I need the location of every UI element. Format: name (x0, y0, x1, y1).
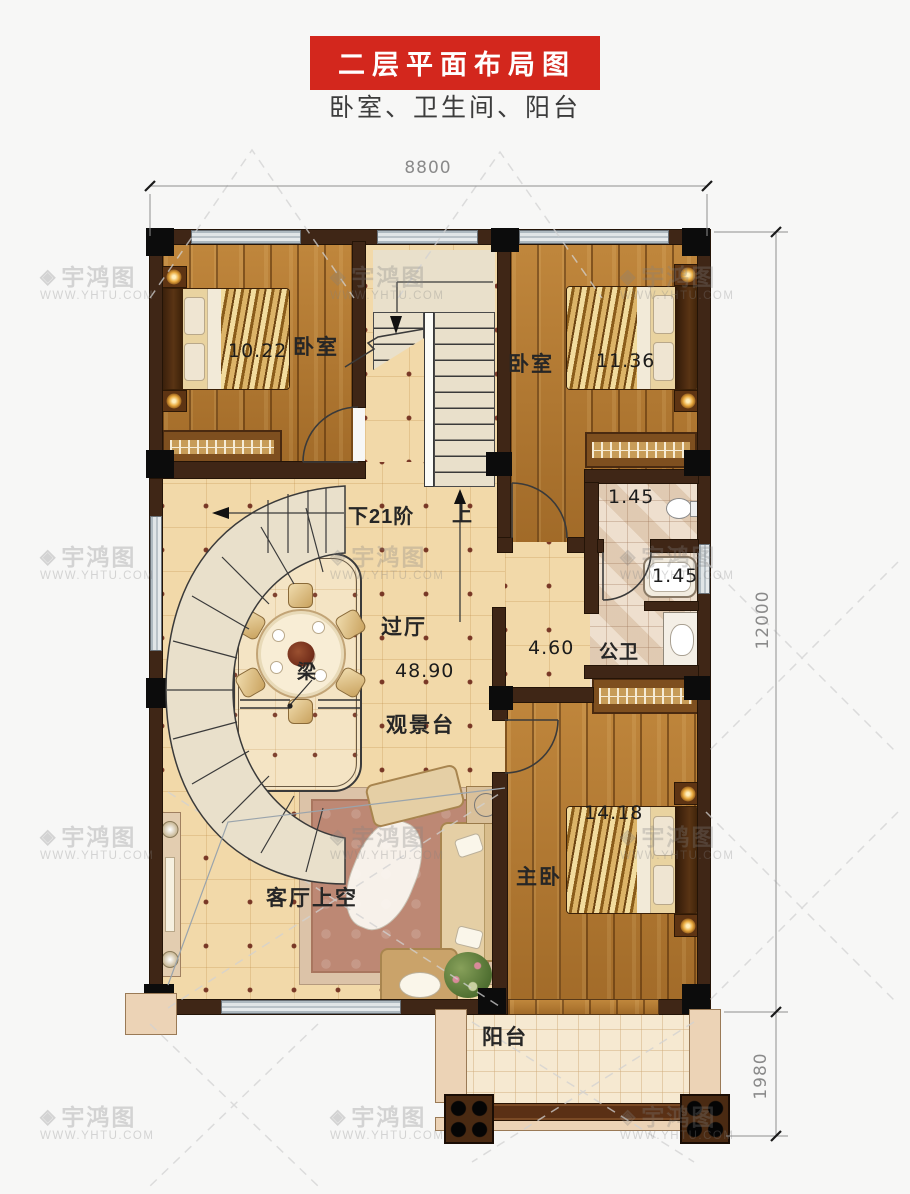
wall-bath-bottom (585, 666, 698, 678)
bathroom-label: 公卫 (599, 637, 639, 664)
wall-bath-top (585, 470, 698, 483)
living-void-label: 客厅上空 (266, 882, 358, 912)
sink-counter (663, 612, 700, 668)
nightstand (160, 266, 187, 288)
nightstand (674, 782, 701, 805)
window-stairs (378, 231, 477, 243)
bath-mid-area: 1.45 (652, 565, 698, 587)
balcony-railing (466, 1104, 692, 1120)
wall-bath-left (585, 483, 598, 613)
column (489, 686, 513, 710)
nightstand (674, 914, 701, 937)
balcony-doorway (508, 1000, 658, 1014)
bed-blanket (567, 287, 637, 389)
wall-bath-div1b (651, 540, 698, 552)
console-knob (161, 821, 178, 838)
watermark-brand: 宇鸿图 (61, 545, 136, 569)
wall-master-left-b (493, 773, 507, 1014)
window-living (222, 1001, 400, 1013)
sofa-pillow (454, 925, 484, 950)
watermark-brand: 宇鸿图 (61, 265, 136, 289)
window-bedroom-right (520, 231, 668, 243)
stair-landing (373, 250, 495, 314)
dim-width-top: 8800 (328, 158, 528, 178)
watermark-brand: 宇鸿图 (61, 825, 136, 849)
floor-plan-page: 二层平面布局图 卧室、卫生间、阳台 (0, 0, 910, 1194)
wall-nook-a (498, 538, 512, 552)
wall-bath-div1a (598, 540, 603, 552)
window-left (151, 517, 161, 650)
watermark: ◈宇鸿图WWW.YHTU.COM (40, 1105, 200, 1142)
column (491, 228, 519, 252)
hall-area: 48.90 (395, 660, 454, 682)
beam-label: 梁 (297, 657, 317, 684)
dining-table (256, 609, 346, 699)
wall-bath-div2 (645, 602, 698, 610)
window-bedroom-left (192, 231, 300, 243)
balcony-label: 阳台 (482, 1021, 528, 1051)
table-cup (312, 621, 325, 634)
wall-bedroom-right-left (498, 242, 510, 552)
nightstand (674, 390, 701, 412)
bed-headboard (675, 807, 699, 913)
balcony-corner-post (444, 1094, 494, 1144)
nightstand (674, 264, 701, 286)
nightstand (160, 390, 187, 412)
stairs-up-label: 上 (452, 498, 473, 527)
table-cup (270, 661, 283, 674)
dining-stool (288, 699, 313, 724)
bed-left (158, 288, 290, 390)
watermark-logo-icon: ◈ (40, 1107, 57, 1128)
bed-pillow (653, 816, 674, 856)
column (146, 678, 174, 708)
bed-pillow (653, 342, 674, 381)
column (486, 452, 512, 476)
column (478, 988, 506, 1014)
bedroom-left-area: 10.22 (228, 340, 287, 362)
master-bedroom-label: 主卧 (516, 861, 562, 891)
balcony-corner-post (680, 1094, 730, 1144)
hall-label: 过厅 (381, 611, 427, 641)
watermark-logo-icon: ◈ (40, 267, 57, 288)
wardrobe-right (585, 432, 697, 468)
sofa-pillow (454, 832, 485, 858)
watermark-brand: 宇鸿图 (61, 1105, 136, 1129)
bed-pillow (653, 295, 674, 334)
watermark-logo-icon: ◈ (40, 547, 57, 568)
console-knob (161, 951, 178, 968)
wardrobe-rail (592, 442, 689, 457)
wall-bedroom-left-right (353, 242, 365, 407)
bedroom-right-area: 11.36 (596, 350, 655, 372)
bed-fold (636, 287, 651, 389)
bedroom-left-label: 卧室 (293, 331, 339, 361)
viewing-deck-label: 观景台 (386, 709, 455, 739)
stairs-down-label: 下21阶 (348, 500, 414, 529)
bed-headboard (675, 287, 699, 389)
column (684, 450, 710, 476)
wardrobe-rail (170, 440, 274, 454)
bed-pillow (184, 343, 205, 381)
wall-right (698, 230, 710, 1014)
bed-right (566, 286, 700, 390)
balcony-pier-right (690, 1010, 720, 1102)
bed-fold (207, 289, 222, 389)
watermark-logo-icon: ◈ (40, 827, 57, 848)
stair-handrail (424, 312, 434, 487)
page-title: 二层平面布局图 (310, 36, 600, 90)
wardrobe-rail (599, 688, 692, 703)
dim-height-right: 12000 (753, 580, 773, 660)
toilet (666, 498, 692, 519)
column (684, 676, 710, 700)
column (682, 228, 710, 256)
bed-blanket (221, 289, 289, 389)
bed-headboard (159, 289, 183, 389)
bedroom-right-label: 卧室 (508, 348, 554, 378)
column (146, 228, 174, 256)
page-subtitle: 卧室、卫生间、阳台 (329, 88, 581, 124)
wall-corridor-left (493, 608, 505, 690)
bed-pillow (653, 865, 674, 905)
armchair-cushion (399, 972, 441, 998)
wardrobe-left (162, 430, 282, 464)
master-bedroom-area: 14.18 (584, 802, 643, 824)
corridor-area: 4.60 (528, 637, 574, 659)
corridor-floor (505, 542, 590, 690)
bath-top-area: 1.45 (608, 486, 654, 508)
console-strip (165, 857, 175, 932)
wardrobe-master (592, 678, 699, 714)
dining-stool (288, 583, 313, 608)
bed-pillow (184, 297, 205, 335)
column (146, 450, 174, 478)
balcony-pier-left (436, 1010, 466, 1102)
table-cup (272, 629, 285, 642)
window-bath (699, 545, 709, 593)
watermark-url: WWW.YHTU.COM (40, 1130, 200, 1142)
balcony-footing (126, 994, 176, 1034)
watermark-logo-icon: ◈ (330, 1107, 347, 1128)
wall-bedroom-left-bottom (150, 462, 365, 478)
watermark-brand: 宇鸿图 (351, 1105, 426, 1129)
dim-balcony-depth: 1980 (751, 1046, 771, 1106)
